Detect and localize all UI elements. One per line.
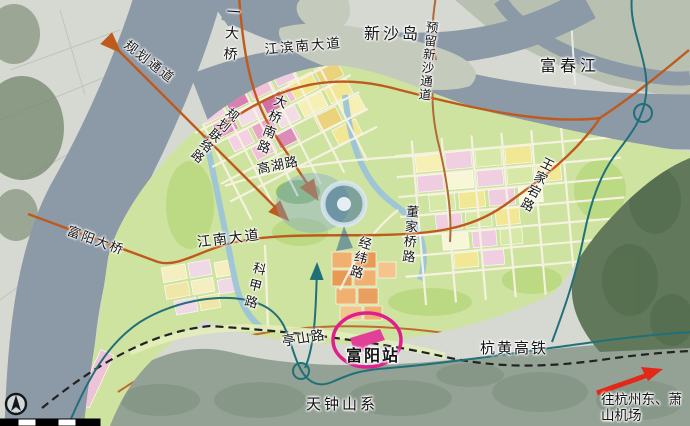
north-arrow-icon: [6, 394, 26, 414]
label-xinsha-island: 新沙岛: [364, 26, 421, 44]
planning-map-canvas: 一大桥 新沙岛 预留新沙通道 富春江 江滨南大道 规划通道 大桥南路 规划联络路…: [0, 0, 690, 426]
label-fuchun-river: 富春江: [540, 58, 600, 76]
label-to-hangzhou-east: 往杭州东、萧山机场: [601, 392, 690, 423]
label-hanghuang-hsr: 杭黄高铁: [480, 340, 548, 357]
label-tianzhong-mountains: 天钟山系: [306, 396, 378, 413]
scale-bar: [0, 419, 100, 426]
label-fuyang-station: 富阳站: [346, 348, 400, 366]
